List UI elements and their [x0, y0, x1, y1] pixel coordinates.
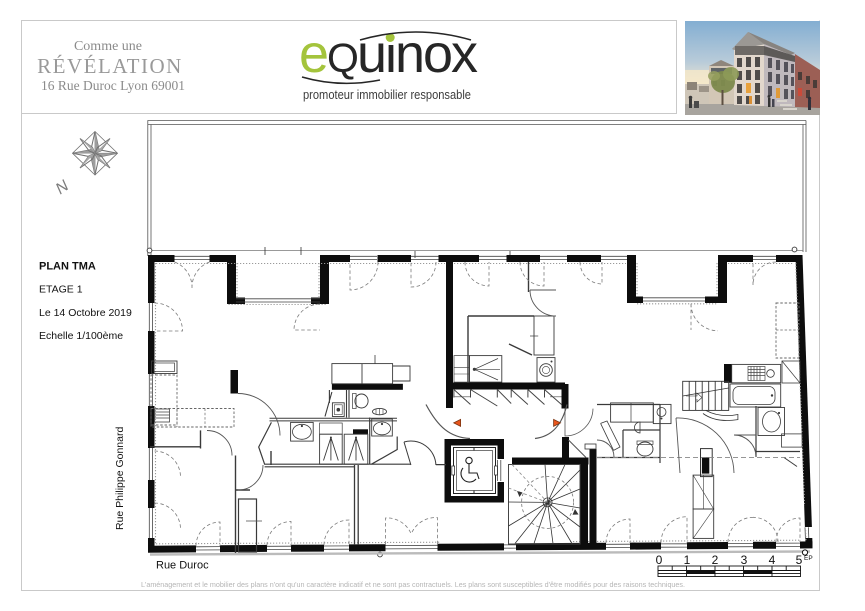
svg-text:Rue Duroc: Rue Duroc: [156, 560, 209, 572]
svg-text:0: 0: [656, 553, 663, 567]
svg-text:16 Rue Duroc Lyon 69001: 16 Rue Duroc Lyon 69001: [41, 78, 185, 93]
svg-text:promoteur immobilier responsab: promoteur immobilier responsable: [303, 88, 471, 102]
svg-text:RÉVÉLATION: RÉVÉLATION: [37, 54, 183, 78]
svg-text:Le 14 Octobre 2019: Le 14 Octobre 2019: [39, 307, 132, 319]
svg-text:Comme une: Comme une: [74, 39, 142, 54]
svg-text:Rue Philippe Gonnard: Rue Philippe Gonnard: [114, 427, 126, 530]
svg-text:L'aménagement et le mobilier d: L'aménagement et le mobilier des plans n…: [141, 580, 685, 589]
svg-text:EP: EP: [804, 555, 813, 562]
svg-text:1: 1: [684, 553, 691, 567]
svg-text:3: 3: [741, 553, 748, 567]
svg-text:Echelle 1/100ème: Echelle 1/100ème: [39, 330, 123, 342]
svg-text:4: 4: [769, 553, 776, 567]
svg-text:2: 2: [712, 553, 719, 567]
svg-text:ETAGE 1: ETAGE 1: [39, 284, 83, 296]
svg-text:5: 5: [796, 553, 803, 567]
svg-text:PLAN TMA: PLAN TMA: [39, 261, 96, 273]
